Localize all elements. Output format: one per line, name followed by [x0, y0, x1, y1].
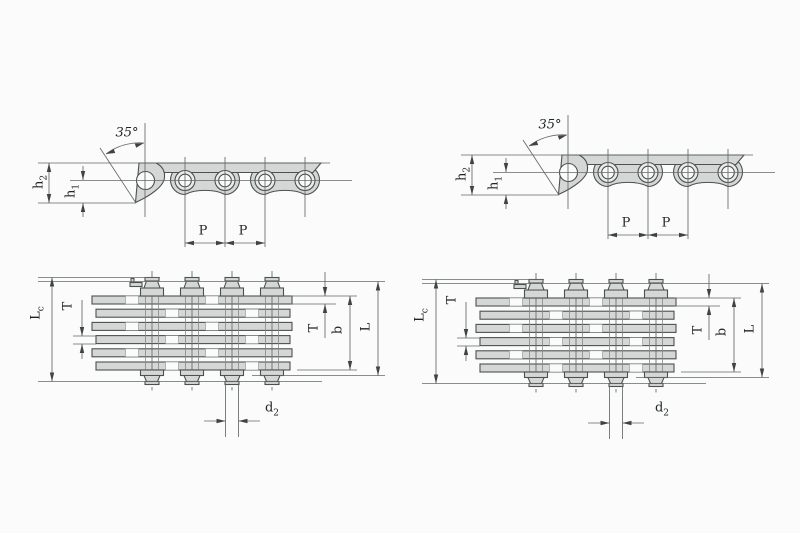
h2-label: h2 — [456, 167, 473, 181]
h1-label: h1 — [65, 184, 82, 198]
t-label: T — [308, 324, 321, 333]
t-label: T — [692, 326, 705, 335]
pitch-label: P — [199, 225, 208, 238]
diagram-canvas — [0, 0, 800, 533]
b-label: b — [332, 326, 345, 334]
l-label: L — [744, 325, 757, 334]
b-label: b — [716, 328, 729, 336]
d2-label: d2 — [655, 402, 669, 419]
t-label: T — [446, 296, 459, 305]
pitch-label: P — [662, 217, 671, 230]
pitch-label: P — [239, 225, 248, 238]
lc-label: Lc — [414, 308, 431, 322]
angle-label: 35° — [538, 119, 561, 132]
h1-label: h1 — [488, 176, 505, 190]
l-label: L — [360, 323, 373, 332]
side-view-right-chain — [461, 115, 775, 239]
angle-label: 35° — [115, 127, 138, 140]
pitch-label: P — [622, 217, 631, 230]
t-label: T — [62, 302, 75, 311]
d2-label: d2 — [265, 402, 279, 419]
side-view-left-chain — [38, 123, 352, 247]
plan-view-right-chain — [422, 273, 769, 439]
plan-view-left-chain — [38, 271, 385, 437]
lc-label: Lc — [30, 306, 47, 320]
h2-label: h2 — [33, 175, 50, 189]
technical-drawing: 35° h2 h1 P P 35° h2 h1 P P Lc T T b L d… — [0, 0, 800, 533]
